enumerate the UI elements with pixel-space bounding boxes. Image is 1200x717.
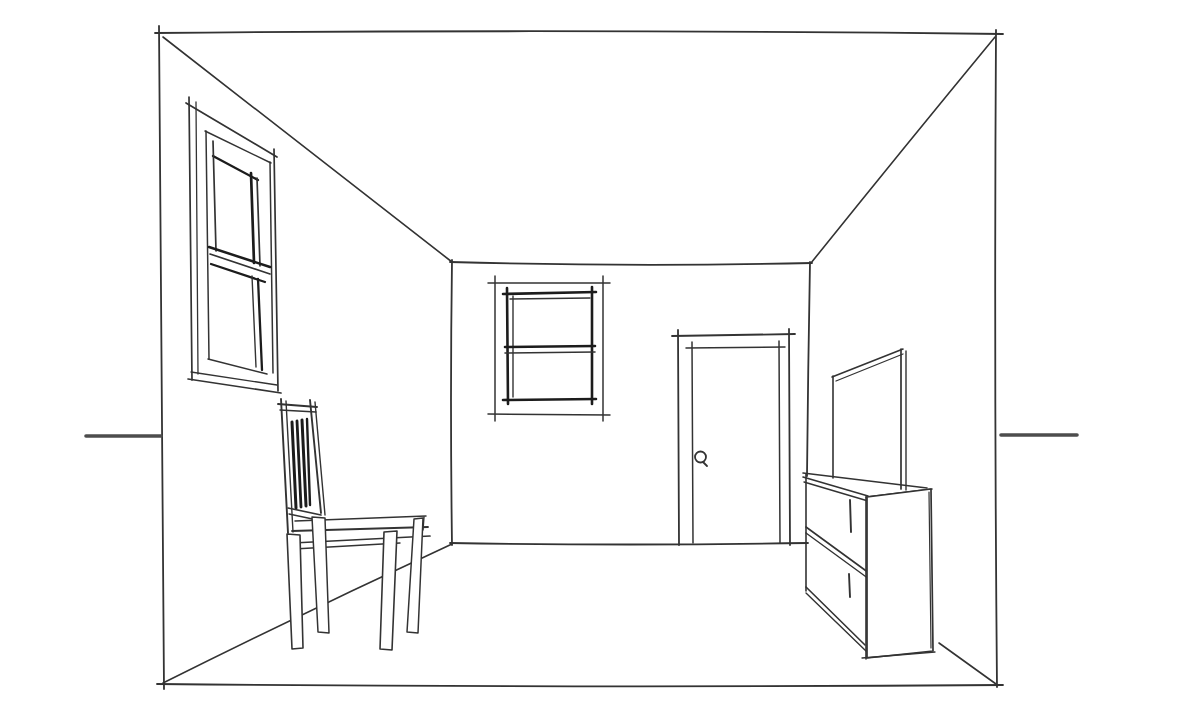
shelf-unit-shelf-post-lower <box>849 574 850 597</box>
door-panel-left <box>692 342 693 543</box>
left-window-inner-frame-left <box>206 131 209 359</box>
shelf-unit-top-front-edge-b <box>804 482 868 501</box>
room-sketch <box>0 0 1200 717</box>
left-window <box>186 97 281 393</box>
shelf-unit-shelf-bottom-a <box>806 587 865 645</box>
shelf-unit <box>803 473 935 659</box>
left-window-outer-frame-right <box>274 149 278 391</box>
shelf-unit-shelf-mid-b <box>806 533 869 579</box>
door-panel-right <box>779 341 780 543</box>
door <box>672 329 795 545</box>
chair-back-slat-3 <box>302 420 306 506</box>
chair-lower-rail-a <box>288 508 321 515</box>
shelf-unit-top-back-edge <box>803 473 927 488</box>
left-window-outer-frame-left-a <box>189 97 192 380</box>
shelf-unit-end-panel <box>867 489 933 658</box>
left-window-outer-frame-top <box>186 103 277 157</box>
shelf-unit-shelf-post-upper <box>850 500 851 532</box>
shelf-unit-shelf-mid-a <box>806 527 869 573</box>
left-window-lower-sash-right-a <box>258 279 262 370</box>
left-window-outer-frame-left-b <box>196 102 198 374</box>
left-window-inner-frame-bottom <box>208 359 267 374</box>
chair-back-slat-2 <box>297 421 301 507</box>
room-structure-frame-top-edge <box>155 31 1003 34</box>
mirror-top-edge-a <box>832 349 903 377</box>
shelf-unit-shelf-bottom-b <box>806 593 866 651</box>
back-window-sash-top-b <box>510 298 590 299</box>
room-structure-frame-right-edge <box>995 30 997 687</box>
mirror <box>832 349 906 490</box>
chair-back-slat-1 <box>292 422 296 508</box>
back-window-mid-rail-b <box>505 352 595 353</box>
sketch-page <box>0 0 1200 717</box>
left-window-upper-sash-right-a <box>251 173 254 263</box>
room-structure-back-wall-top-edge <box>450 262 812 265</box>
room-structure-back-wall-floor-edge <box>450 543 808 545</box>
door-doorknob <box>695 452 706 463</box>
door-doorknob-tail <box>703 462 707 466</box>
back-window-sash-bottom <box>503 399 596 400</box>
left-window-lower-sash-right-b <box>252 276 256 367</box>
chair-leg-front-left <box>287 534 303 649</box>
back-window <box>488 276 610 421</box>
back-window-sash-top <box>503 292 596 294</box>
door-frame-right <box>789 329 790 545</box>
room-structure-back-wall-right-corner <box>807 262 810 476</box>
chair <box>278 399 430 650</box>
back-window-outer-frame-bottom <box>488 414 610 415</box>
left-window-outer-frame-bottom-a <box>188 379 281 393</box>
mirror-top-edge-b <box>836 354 903 381</box>
room-structure-ceiling-edge-right <box>811 37 995 263</box>
left-window-upper-sash-right-b <box>257 178 260 266</box>
door-frame-left <box>678 330 679 545</box>
chair-leg-front-right <box>380 531 397 650</box>
room-structure-frame-left-edge <box>159 26 164 689</box>
room-structure-frame-bottom-edge <box>157 684 1003 686</box>
back-window-mid-rail-a <box>505 346 595 347</box>
door-frame-top <box>672 334 795 336</box>
room-structure-back-wall-left-corner <box>451 260 452 545</box>
door-panel-top <box>686 347 785 348</box>
chair-leg-rear-right <box>407 518 423 633</box>
room-structure-floor-edge-right <box>939 643 996 684</box>
chair-leg-rear-left <box>312 517 329 633</box>
chair-back-slat-4 <box>307 419 310 505</box>
